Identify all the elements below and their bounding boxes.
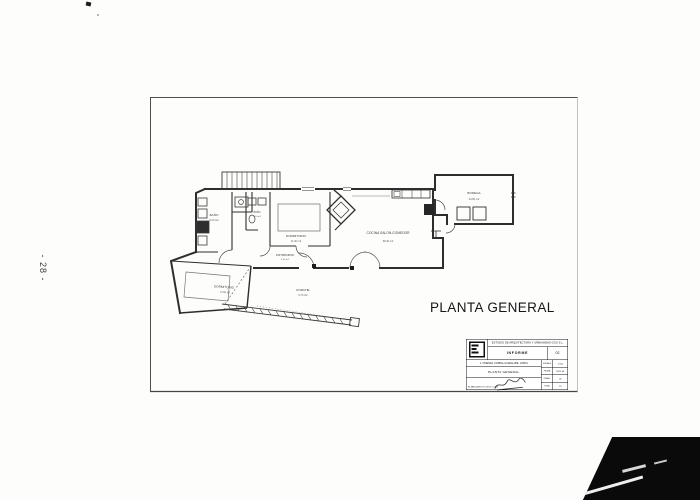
title-block-fields: ESCALA 1:100 FECHA NOV. 04 PLANO 02 HOJA… — [542, 360, 568, 390]
field-label: FECHA — [542, 368, 554, 375]
field-value: 1:100 — [553, 360, 568, 367]
scan-streak — [654, 459, 667, 464]
floor-plan-drawing: BAÑO 5.20 m2 BAÑO 3.10 m2 DORMITORIO 11.… — [0, 0, 700, 500]
plan-caption: PLANTA GENERAL — [430, 300, 580, 315]
room-area: 38.40 m2 — [383, 240, 394, 243]
sheet-title: PLANTA GENERAL — [467, 367, 542, 378]
scanned-report-page: - 28 - — [0, 0, 700, 500]
scan-speck — [86, 2, 92, 7]
room-label: COCINA SALON-COMEDOR — [366, 231, 410, 235]
room-area: 5.20 m2 — [209, 219, 219, 222]
stairs-icon — [222, 172, 280, 189]
title-block: ESTUDIO DE ARQUITECTURA Y URBANISMO GOU … — [466, 339, 568, 390]
scan-speck — [97, 14, 99, 16]
stove-icon — [424, 204, 434, 215]
field-label: HOJA — [542, 383, 554, 390]
room-label: DORMITORIO — [286, 234, 307, 238]
counter — [392, 190, 430, 198]
sink-icon — [239, 200, 244, 205]
room-area: 9.70 m2 — [298, 294, 308, 297]
porch-and-retaining-wall — [222, 264, 359, 327]
firm-name: ESTUDIO DE ARQUITECTURA Y URBANISMO GOU … — [488, 340, 568, 348]
document-type: INFORME — [488, 347, 547, 360]
room-area: 4.60 m2 — [281, 259, 290, 261]
room-label: BAÑO — [210, 212, 219, 217]
room-area: 11.30 m2 — [291, 240, 302, 243]
field-value: NOV. 04 — [553, 368, 568, 375]
room-label: DORMITORIO — [214, 284, 235, 289]
post-icon — [312, 264, 316, 268]
room-label: BAÑO — [253, 211, 260, 214]
kitchen-details — [278, 190, 434, 231]
room-area: 24.80 m2 — [469, 198, 480, 201]
field-value: 02 — [553, 375, 568, 382]
post-icon — [350, 266, 354, 270]
room-area: 3.10 m2 — [253, 216, 262, 218]
sink-icon — [394, 192, 400, 197]
firm-logo-icon — [467, 340, 489, 360]
field-label: PLANO — [542, 375, 554, 382]
slanted-bedroom-walls — [171, 261, 251, 313]
project-line: 1. VIVIENDA. CORRAL GUADALUPE. LORCA — [467, 360, 542, 367]
bed-icon — [278, 204, 320, 231]
room-label: DISTRIBUIDOR — [276, 254, 294, 257]
scan-streak — [622, 464, 646, 472]
interior-walls — [196, 192, 330, 252]
document-number: 02 — [547, 347, 568, 360]
annex-details — [302, 188, 516, 238]
room-label: PORCHE — [296, 288, 309, 292]
field-label: ESCALA — [542, 360, 554, 367]
hatched-fixture — [197, 221, 209, 233]
field-value: 1/1 — [553, 383, 568, 390]
margin-page-number: - 28 - — [36, 248, 48, 288]
chimney-icon — [327, 196, 355, 224]
room-label: BODEGA — [467, 191, 481, 195]
room-area: 13.50 m2 — [220, 291, 231, 295]
